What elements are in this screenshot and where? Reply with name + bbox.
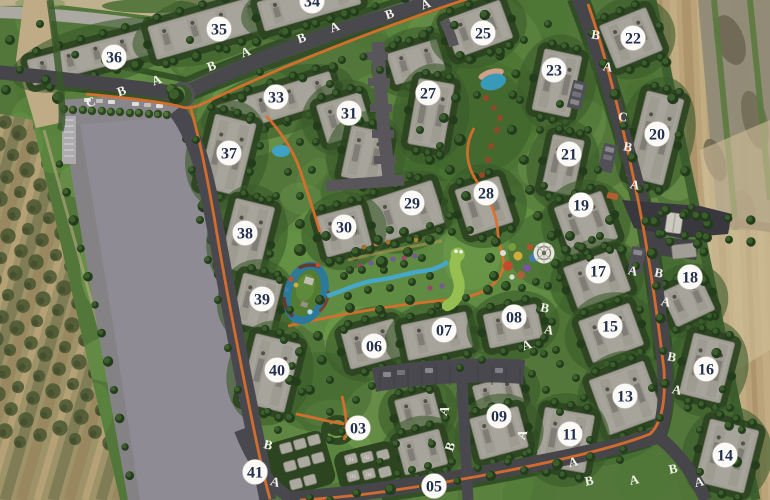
svg-text:28: 28 <box>478 186 494 203</box>
svg-text:25: 25 <box>475 26 491 43</box>
svg-text:41: 41 <box>247 465 263 482</box>
svg-text:07: 07 <box>436 323 452 340</box>
svg-text:06: 06 <box>366 339 382 356</box>
svg-text:36: 36 <box>106 50 122 67</box>
svg-text:05: 05 <box>426 479 442 496</box>
svg-text:29: 29 <box>404 196 420 213</box>
svg-text:21: 21 <box>561 147 577 164</box>
svg-text:37: 37 <box>221 146 237 163</box>
svg-text:33: 33 <box>268 90 284 107</box>
svg-text:20: 20 <box>649 127 665 144</box>
svg-text:39: 39 <box>254 292 270 309</box>
svg-text:13: 13 <box>617 389 633 406</box>
svg-text:27: 27 <box>420 86 436 103</box>
svg-text:09: 09 <box>491 409 507 426</box>
svg-text:17: 17 <box>590 264 606 281</box>
svg-text:18: 18 <box>682 270 698 287</box>
svg-text:38: 38 <box>237 226 253 243</box>
svg-text:31: 31 <box>341 106 357 123</box>
svg-text:11: 11 <box>562 427 577 444</box>
svg-text:35: 35 <box>211 22 227 39</box>
svg-text:34: 34 <box>304 0 320 11</box>
svg-text:03: 03 <box>350 421 366 438</box>
svg-text:15: 15 <box>602 319 618 336</box>
svg-text:23: 23 <box>546 63 562 80</box>
svg-text:40: 40 <box>269 363 285 380</box>
svg-text:16: 16 <box>698 362 714 379</box>
svg-text:14: 14 <box>717 448 733 465</box>
svg-text:30: 30 <box>336 220 352 237</box>
svg-text:08: 08 <box>506 310 522 327</box>
svg-text:19: 19 <box>573 198 589 215</box>
svg-text:22: 22 <box>625 31 641 48</box>
